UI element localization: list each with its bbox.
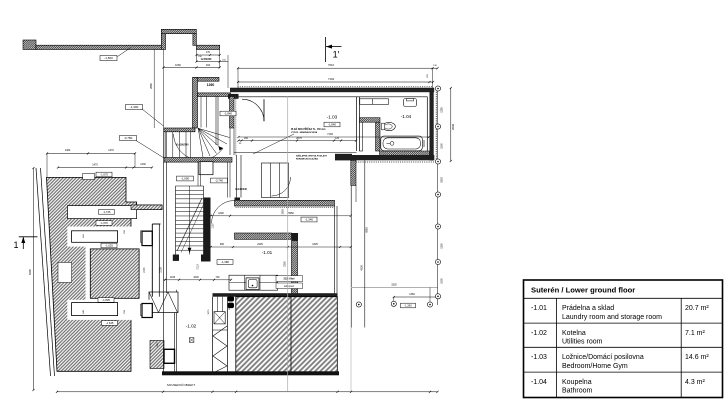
svg-text:14.6 m²: 14.6 m² bbox=[685, 354, 709, 361]
svg-text:-1,380: -1,380 bbox=[221, 260, 229, 264]
svg-text:-1,500: -1,500 bbox=[104, 56, 113, 60]
svg-text:2100: 2100 bbox=[160, 267, 163, 273]
svg-text:1: 1 bbox=[13, 240, 18, 250]
svg-text:1090: 1090 bbox=[218, 212, 224, 215]
svg-text:1300: 1300 bbox=[440, 243, 443, 249]
svg-text:7193: 7193 bbox=[328, 77, 334, 81]
svg-text:1470: 1470 bbox=[108, 149, 114, 152]
svg-text:7110: 7110 bbox=[197, 264, 200, 270]
svg-text:1360: 1360 bbox=[409, 293, 415, 296]
svg-text:470: 470 bbox=[206, 51, 211, 54]
svg-text:-2,740: -2,740 bbox=[215, 179, 223, 183]
svg-text:1100: 1100 bbox=[213, 223, 215, 229]
svg-text:5950: 5950 bbox=[288, 212, 294, 215]
svg-text:1803: 1803 bbox=[440, 177, 443, 183]
svg-text:-1.03: -1.03 bbox=[327, 115, 338, 120]
svg-text:1′: 1′ bbox=[333, 50, 340, 60]
svg-text:KERAMICKÁ DLAŽBA: KERAMICKÁ DLAŽBA bbox=[296, 157, 318, 160]
svg-text:Laundry room and storage room: Laundry room and storage room bbox=[562, 314, 662, 321]
svg-text:-1,805: -1,805 bbox=[102, 298, 110, 302]
svg-text:1500: 1500 bbox=[440, 278, 443, 284]
svg-text:2860: 2860 bbox=[149, 83, 153, 89]
svg-text:V1x180/240: V1x180/240 bbox=[176, 144, 190, 147]
svg-text:1230: 1230 bbox=[140, 163, 146, 166]
svg-text:-1,260: -1,260 bbox=[404, 304, 412, 308]
svg-text:-1.01: -1.01 bbox=[262, 250, 273, 255]
svg-text:215l Uhel: 215l Uhel bbox=[284, 278, 295, 281]
svg-text:VÝPLŇ - MINERÁLNÍ VATA: VÝPLŇ - MINERÁLNÍ VATA bbox=[291, 131, 318, 134]
svg-text:3320: 3320 bbox=[391, 283, 397, 286]
svg-text:2575: 2575 bbox=[296, 136, 302, 140]
svg-text:-1,840: -1,840 bbox=[224, 112, 232, 116]
svg-text:-1.01: -1.01 bbox=[531, 305, 547, 312]
svg-text:7.1 m²: 7.1 m² bbox=[685, 330, 706, 337]
svg-text:6295: 6295 bbox=[28, 269, 32, 275]
svg-text:1285: 1285 bbox=[440, 107, 443, 113]
svg-text:3075: 3075 bbox=[208, 309, 210, 315]
svg-text:Utilities room: Utilities room bbox=[562, 339, 603, 346]
svg-text:1x15l/230: 1x15l/230 bbox=[201, 58, 212, 61]
svg-text:PLNÁ SDK PŘÍČKA TL. 150 mm: PLNÁ SDK PŘÍČKA TL. 150 mm bbox=[291, 128, 325, 131]
svg-text:1470: 1470 bbox=[92, 163, 98, 166]
svg-text:900: 900 bbox=[220, 243, 225, 246]
svg-text:4500: 4500 bbox=[361, 265, 364, 271]
svg-text:-1,670: -1,670 bbox=[100, 221, 108, 225]
svg-text:-1.04: -1.04 bbox=[531, 379, 547, 386]
svg-text:20.7 m²: 20.7 m² bbox=[685, 305, 709, 312]
svg-text:6060: 6060 bbox=[366, 227, 369, 233]
svg-text:Koupelna: Koupelna bbox=[562, 379, 592, 386]
svg-text:-1.04: -1.04 bbox=[401, 114, 412, 119]
svg-text:-1,745: -1,745 bbox=[103, 210, 111, 214]
svg-text:125: 125 bbox=[335, 137, 340, 140]
svg-text:-1.02: -1.02 bbox=[186, 324, 197, 329]
svg-text:1950: 1950 bbox=[282, 209, 285, 215]
svg-text:2225: 2225 bbox=[257, 243, 263, 246]
svg-text:Bedroom/Home Gym: Bedroom/Home Gym bbox=[562, 363, 628, 370]
svg-text:-1,340: -1,340 bbox=[305, 218, 313, 222]
svg-text:1625: 1625 bbox=[312, 243, 318, 246]
svg-text:1460: 1460 bbox=[65, 149, 71, 152]
svg-text:SOUSEDNÍ OBJEKT: SOUSEDNÍ OBJEKT bbox=[167, 383, 195, 387]
svg-text:Lab.vpusť: Lab.vpusť bbox=[284, 285, 294, 288]
svg-text:4.3 m²: 4.3 m² bbox=[685, 379, 706, 386]
svg-text:-0,780: -0,780 bbox=[124, 136, 133, 140]
svg-text:1180: 1180 bbox=[157, 342, 159, 347]
svg-text:7193: 7193 bbox=[327, 132, 333, 136]
svg-text:-1,625: -1,625 bbox=[105, 244, 113, 248]
svg-text:-1,300: -1,300 bbox=[130, 105, 139, 109]
svg-text:-1,840: -1,840 bbox=[328, 123, 336, 127]
svg-text:-1.02: -1.02 bbox=[531, 330, 547, 337]
svg-text:7610: 7610 bbox=[328, 63, 334, 67]
svg-text:1000: 1000 bbox=[193, 276, 199, 279]
svg-text:-1,645: -1,645 bbox=[106, 321, 114, 325]
svg-text:Kotelna: Kotelna bbox=[562, 330, 586, 337]
svg-text:700: 700 bbox=[216, 276, 221, 279]
svg-text:3x140/240: 3x140/240 bbox=[235, 188, 247, 191]
svg-text:1500: 1500 bbox=[440, 143, 443, 149]
svg-text:Prádelna a sklad: Prádelna a sklad bbox=[562, 305, 614, 312]
svg-text:-1,690: -1,690 bbox=[181, 177, 189, 181]
svg-text:-1.03: -1.03 bbox=[531, 354, 547, 361]
svg-text:Bathroom: Bathroom bbox=[562, 388, 593, 395]
svg-text:1060: 1060 bbox=[175, 63, 181, 67]
svg-text:1260: 1260 bbox=[207, 83, 215, 87]
svg-text:160: 160 bbox=[206, 63, 211, 67]
svg-text:Ložnice/Domácí posilovna: Ložnice/Domácí posilovna bbox=[562, 354, 644, 361]
svg-text:Suterén / Lower ground floor: Suterén / Lower ground floor bbox=[531, 286, 635, 295]
svg-text:NÁŠLAPNÁ VRSTVA PODLAHY: NÁŠLAPNÁ VRSTVA PODLAHY bbox=[296, 155, 328, 158]
svg-text:2300: 2300 bbox=[284, 261, 287, 267]
svg-text:-1,675: -1,675 bbox=[100, 173, 108, 177]
svg-text:2639: 2639 bbox=[451, 124, 455, 130]
svg-text:2130: 2130 bbox=[144, 267, 146, 273]
svg-text:200: 200 bbox=[244, 137, 249, 140]
svg-text:1195: 1195 bbox=[170, 276, 176, 279]
